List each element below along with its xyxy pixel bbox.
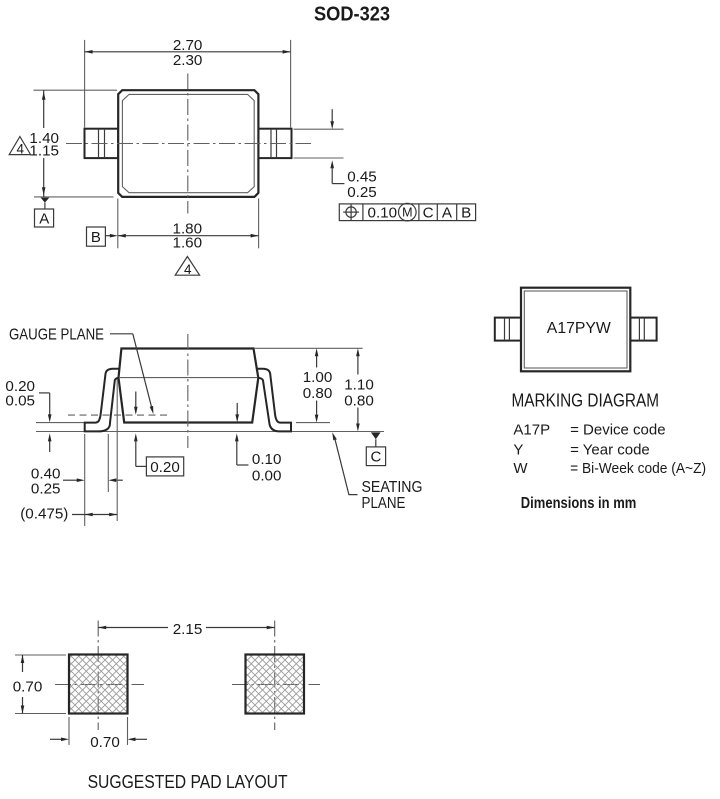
svg-text:MARKING DIAGRAM: MARKING DIAGRAM (512, 390, 660, 410)
svg-text:A: A (442, 205, 453, 222)
svg-text:1.00: 1.00 (303, 369, 333, 386)
svg-text:A: A (39, 211, 49, 228)
svg-text:Y: Y (513, 442, 523, 459)
svg-text:B: B (91, 229, 101, 246)
svg-text:SEATING: SEATING (362, 479, 423, 496)
svg-text:0.25: 0.25 (347, 184, 377, 201)
svg-text:= Bi-Week code (A~Z): = Bi-Week code (A~Z) (570, 460, 706, 477)
svg-text:W: W (513, 460, 528, 477)
svg-text:4: 4 (184, 262, 192, 277)
svg-text:0.10: 0.10 (368, 205, 398, 222)
svg-text:(0.475): (0.475) (20, 506, 68, 523)
svg-text:= Device code: = Device code (570, 422, 665, 439)
svg-text:1.60: 1.60 (173, 234, 203, 251)
svg-text:C: C (370, 449, 381, 466)
svg-text:= Year code: = Year code (570, 442, 650, 459)
svg-text:0.70: 0.70 (13, 678, 43, 695)
svg-text:0.80: 0.80 (303, 385, 333, 402)
svg-text:0.70: 0.70 (90, 734, 120, 751)
svg-text:2.30: 2.30 (173, 52, 203, 69)
svg-text:GAUGE PLANE: GAUGE PLANE (9, 326, 104, 343)
svg-text:Dimensions in mm: Dimensions in mm (521, 495, 637, 512)
svg-text:SUGGESTED PAD LAYOUT: SUGGESTED PAD LAYOUT (88, 772, 288, 792)
svg-text:0.00: 0.00 (252, 467, 282, 484)
svg-text:1.15: 1.15 (29, 142, 59, 159)
svg-text:A17P: A17P (513, 422, 550, 439)
svg-text:M: M (402, 206, 412, 220)
svg-text:0.20: 0.20 (150, 459, 180, 476)
svg-text:4: 4 (16, 141, 24, 156)
svg-text:1.10: 1.10 (344, 377, 374, 394)
svg-text:0.25: 0.25 (31, 481, 61, 498)
svg-text:0.10: 0.10 (252, 451, 282, 468)
svg-text:SOD-323: SOD-323 (314, 4, 390, 26)
svg-text:C: C (423, 205, 434, 222)
svg-text:B: B (461, 205, 471, 222)
svg-text:0.80: 0.80 (344, 393, 374, 410)
svg-text:PLANE: PLANE (362, 495, 406, 512)
svg-text:0.05: 0.05 (5, 393, 35, 410)
svg-text:2.15: 2.15 (173, 621, 203, 638)
svg-text:A17PYW: A17PYW (547, 320, 611, 337)
